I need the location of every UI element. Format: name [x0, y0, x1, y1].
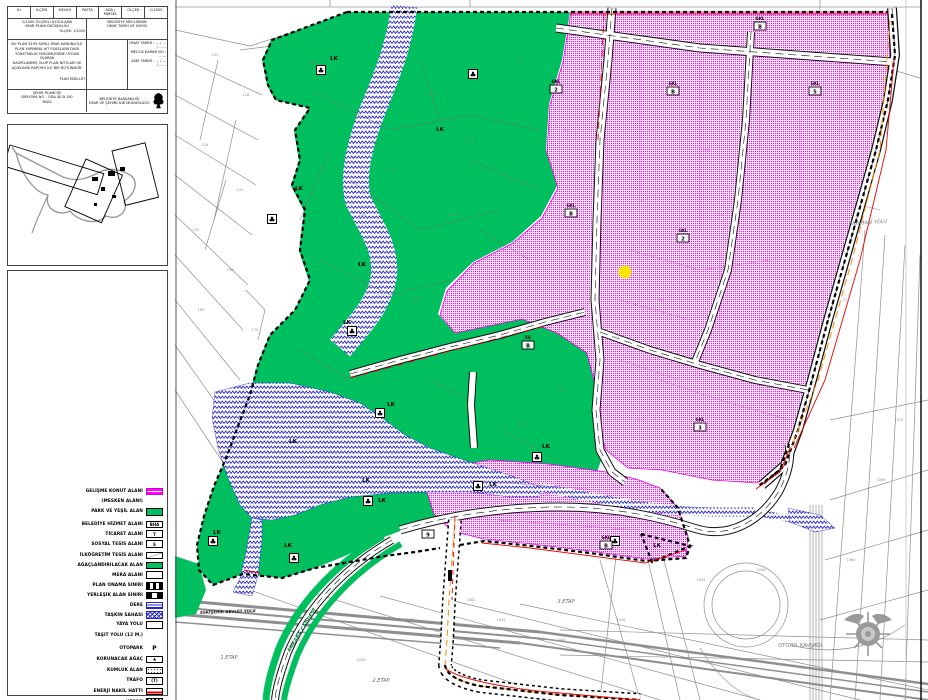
map-canvas[interactable]: LKLKLKLKLKLKLKLKLKLKLKLKLKLK♣♣♣♣♣♣♣♣♣♣♣G… [175, 0, 928, 700]
legend-swatch-green [146, 508, 163, 516]
legend-swatch-boxtext: T [146, 530, 163, 538]
parcel-number: 372 [843, 298, 850, 302]
legend-item: KORUNACAK AĞAÇ♣ [10, 655, 163, 664]
legend-item: (MESKEN ALANI) [10, 497, 163, 506]
poi-yellow-dot [619, 266, 632, 279]
legend-item: BELEDİYE HİZMET ALANIBHA [10, 520, 163, 529]
parcel-number: 342 [638, 198, 645, 202]
legend-item-label: TAŞIT YOLU (12 M.) [95, 633, 143, 638]
plan-title-cell: 1/1000 ÖLÇEKLİ UYGULAMA İMAR PLANI DEĞİŞ… [8, 19, 87, 39]
parcel-number: 247 [449, 213, 456, 217]
tree-icon: ♣ [469, 70, 478, 79]
legend-swatch-redline [146, 688, 163, 696]
parcel-number: 101 [212, 53, 219, 57]
tree-glyph: ♣ [349, 327, 356, 336]
parcel-number: 1034 [497, 618, 507, 622]
zone-label-lk: LK [330, 56, 339, 62]
zone-tag-code: 9 [426, 532, 430, 538]
zone-tag-code: 2 [681, 236, 685, 242]
tree-icon: ♣ [209, 537, 218, 546]
title-block-cell: 1/1000 [145, 7, 167, 18]
parcel-number: 214 [387, 168, 394, 172]
approval-dates: ONAY TARİHİ : ... / ... / ......MECLİS K… [128, 40, 167, 89]
tree-glyph: ♣ [612, 537, 619, 546]
map-text-label: 1.ETAP [221, 655, 238, 661]
legend-item-label: TRAFO [126, 678, 143, 683]
legend-item: PARK VE YEŞİL ALAN [10, 508, 163, 517]
legend-item-label: DERE [130, 603, 143, 608]
zone-tag-code: B [671, 89, 675, 95]
side-panel: İLİİLÇESİMEVKİİPAFTAADA / PARSELÖLÇEK1/1… [0, 0, 175, 700]
legend-item: GELİŞME KONUT ALANI [10, 487, 163, 496]
parcel-number: 240 [359, 213, 366, 217]
title-block-cell: ADA / PARSEL [99, 7, 122, 18]
tree-icon: ♣ [290, 554, 299, 563]
zone-tag-top: GKL [602, 535, 611, 540]
parcel-number: 366 [758, 318, 765, 322]
author-cell: ŞEHİR PLANCISIDİPLOMA NO - ODA SİCİL NOİ… [8, 90, 87, 112]
legend-item: AĞAÇLANDIRILACAK ALAN [10, 561, 163, 570]
legend-swatch-white [146, 571, 163, 579]
legend-item-label: ENERJİ NAKİL HATTI [94, 689, 144, 694]
inset-key-map [7, 124, 168, 266]
zone-tag-top: GKL [756, 16, 765, 21]
legend-item: MERA ALANI [10, 571, 163, 580]
tree-glyph: ♣ [377, 409, 384, 418]
legend-swatch-boxtext: BHA [146, 521, 163, 529]
parcel-number: 131 [237, 188, 244, 192]
zone-tag-code: B [758, 24, 762, 30]
zone-label-lk: LK [295, 186, 304, 192]
zone-tag-top: GKL [811, 81, 820, 86]
tree-glyph: ♣ [269, 215, 276, 224]
zone-label-lk: LK [542, 444, 551, 450]
municipality-cell: BELEDİYE BAŞKANLIĞI İMAR VE ŞEHİRCİLİK M… [87, 90, 167, 112]
tree-glyph: ♣ [210, 537, 217, 546]
legend-item: İLKÖĞRETİM TESİS ALANI [10, 551, 163, 560]
zone-tag-top: GKL [552, 79, 561, 84]
plan-note-line: AÇIKLAMA RAPORU İLE BİR BÜTÜNDÜR. [9, 66, 85, 70]
title-block-cell: PAFTA [77, 7, 100, 18]
zone-tag-top: GKL [679, 228, 688, 233]
tree-icon: ♣ [533, 453, 542, 462]
parcel-number: 259 [413, 298, 420, 302]
parcel-number: 1069 [877, 478, 886, 482]
parcel-number: 271 [299, 458, 306, 462]
legend-swatch-bluelines [146, 602, 163, 610]
municipality-logo [151, 92, 166, 110]
tree-icon: ♣ [317, 66, 326, 75]
zone-tag-code: 5 [813, 89, 817, 95]
approval-date-line: ASKI TARİHİ : ... / ... / ...... [129, 59, 166, 68]
legend-item-label: YERLEŞİK ALAN SINIRI [87, 593, 143, 598]
legend-item-label: YAYA YOLU [116, 622, 143, 627]
parcel-number: 1063 [847, 558, 856, 562]
legend-item-label: GELİŞME KONUT ALANI [86, 489, 143, 494]
parcel-number: 1040 [557, 638, 566, 642]
zone-label-lk: LK [284, 543, 293, 549]
parcel-number: 1052 [697, 578, 706, 582]
parcel-number: 1081 [467, 598, 476, 602]
tree-glyph: ♣ [365, 497, 372, 506]
title-block-cell: ÖLÇEK [122, 7, 145, 18]
zone-tag-code: 3 [698, 425, 702, 431]
parcel-number: 252 [499, 248, 506, 252]
map-text-label: 3.ETAP [558, 599, 575, 605]
legend-swatch-glyph: P [146, 644, 163, 652]
legend-item: YAYA YOLU [10, 621, 163, 630]
plan-note-line: PLAN YAPIMINA AİT ESASLARA DAİR [9, 47, 85, 51]
legend-item: DERE [10, 601, 163, 610]
municipality-line2: İMAR VE ŞEHİRCİLİK MÜDÜRLÜĞÜ [88, 101, 151, 105]
parcel-number: 378 [638, 418, 645, 422]
parcel-number: 1028 [357, 658, 366, 662]
parcel-number: 163 [198, 308, 205, 312]
zone-label-lk: LK [378, 498, 387, 504]
zone-tag-top: GKL [696, 417, 705, 422]
legend-item: ENERJİ NAKİL HATTI [10, 687, 163, 696]
parcel-number: 266 [327, 428, 334, 432]
legend-item-label: AĞAÇLANDIRILACAK ALAN [77, 563, 143, 568]
parcel-number: 221 [429, 93, 436, 97]
legend-item-label: KUMLUK ALAN [107, 668, 143, 673]
tree-icon: ♣ [376, 409, 385, 418]
parcel-number: 1087 [407, 618, 416, 622]
tree-icon: ♣ [268, 215, 277, 224]
tree-glyph: ♣ [534, 453, 541, 462]
legend-item-label: OTOPARK [119, 646, 143, 651]
parcel-number: 156 [227, 268, 234, 272]
parcel-number: 124 [202, 143, 209, 147]
parcel-number: 390 [498, 518, 505, 522]
approval-line2: ONAY TARİH VE SAYISI [88, 24, 166, 28]
zone-tag-top: GKL [669, 81, 678, 86]
zone-label-lk: LK [436, 127, 445, 133]
legend-item: KUMLUK ALAN [10, 666, 163, 675]
legend-item: YERLEŞİK ALAN SINIRI [10, 591, 163, 600]
legend-swatch-magenta [146, 488, 163, 496]
approval-date-line: MECLİS KARAR NO : ...... [129, 50, 166, 59]
tree-icon: ♣ [348, 327, 357, 336]
zone-tag-code: B [526, 343, 530, 349]
legend: GELİŞME KONUT ALANI(MESKEN ALANI)PARK VE… [10, 486, 163, 700]
inset-map-canvas [8, 125, 165, 263]
parcel-number: 384 [558, 388, 565, 392]
legend-swatch-diag [146, 552, 163, 560]
legend-item-label: SOSYAL TESİS ALANI [91, 542, 143, 547]
legend-item: SOSYAL TESİS ALANIS [10, 540, 163, 549]
legend-item: OTOPARKP [10, 644, 163, 653]
parcel-number: 360 [658, 298, 665, 302]
plan-sheet: İLİİLÇESİMEVKİİPAFTAADA / PARSELÖLÇEK1/1… [0, 0, 928, 700]
zone-tag-top: GKL [567, 203, 576, 208]
zone-tag-top: SU [525, 335, 531, 340]
parcel-number: 354 [798, 228, 805, 232]
legend-swatch-bwdash2 [146, 592, 163, 600]
title-block-row1: İLİİLÇESİMEVKİİPAFTAADA / PARSELÖLÇEK1/1… [8, 7, 167, 19]
zone-label-lk: LK [362, 478, 371, 484]
legend-item: TİCARET ALANIT [10, 530, 163, 539]
legend-item: TAŞIT YOLU (12 M.) [10, 631, 163, 640]
parcel-number: 233 [517, 59, 524, 63]
parcel-number: 348 [718, 213, 725, 217]
plan-note-line: BU PLAN 3194 SAYILI İMAR KANUNU İLE [9, 42, 85, 46]
legend-item-label: PLAN ONAMA SINIRI [93, 583, 143, 588]
zone-label-lk: LK [387, 402, 396, 408]
plan-author-note: PLAN MÜELLİFİ [9, 77, 85, 81]
zone-label-lk: LK [289, 439, 298, 445]
parcel-number: 170 [252, 328, 259, 332]
map-text-label: 2.ETAP [373, 678, 390, 684]
legend-item-label: TAŞKIN SAHASI [105, 613, 143, 618]
author-line: İMZA [9, 100, 85, 104]
title-block-cell: İLÇESİ [31, 7, 54, 18]
parcel-number: 228 [467, 138, 474, 142]
legend-item-label: KORUNACAK AĞAÇ [96, 657, 143, 662]
legend-swatch-boxtext: (T) [146, 677, 163, 685]
parcel-number: 1046 [617, 618, 626, 622]
signature-box-1 [87, 40, 128, 89]
legend-item-label: TİCARET ALANI [105, 532, 143, 537]
title-block: İLİİLÇESİMEVKİİPAFTAADA / PARSELÖLÇEK1/1… [7, 6, 168, 114]
parcel-number: 310 [563, 128, 570, 132]
tree-glyph: ♣ [318, 66, 325, 75]
legend-item: PLAN ONAMA SINIRI [10, 581, 163, 590]
legend-item: TAŞKIN SAHASI [10, 611, 163, 620]
tree-glyph: ♣ [470, 70, 477, 79]
parcel-number: 324 [703, 148, 710, 152]
legend-item: TRAFO(T) [10, 677, 163, 686]
legend-swatch-tree: ♣ [146, 656, 163, 664]
tree-glyph: ♣ [475, 482, 482, 491]
zone-label-lk: LK [213, 530, 222, 536]
zone-tag-code: 2 [554, 87, 558, 93]
legend-swatch-white [146, 621, 163, 629]
plan-notes: BU PLAN 3194 SAYILI İMAR KANUNU İLEPLAN … [8, 40, 87, 89]
tree-icon: ♣ [364, 497, 373, 506]
plan-scale-note: ÖLÇEK: 1/1000 [9, 29, 85, 33]
legend-swatch-dotted [146, 667, 163, 675]
legend-swatch-bluehatch [146, 611, 163, 619]
legend-box: GELİŞME KONUT ALANI(MESKEN ALANI)PARK VE… [7, 270, 168, 696]
zone-tag-code: B [604, 543, 608, 549]
legend-item-label: (MESKEN ALANI) [101, 499, 143, 504]
map-text-label: OTOYOL KAVŞAĞI [778, 642, 821, 649]
legend-item-label: BELEDİYE HİZMET ALANI [82, 522, 143, 527]
parcel-number: 278 [518, 423, 525, 427]
parcel-number: 1058 [757, 568, 766, 572]
zone-label-lk: LK [358, 262, 367, 268]
parcel-number: 205 [309, 61, 316, 65]
zone-label-lk: LK [343, 320, 352, 326]
parcel-number: 336 [838, 128, 845, 132]
legend-swatch-bwdash [146, 582, 163, 590]
tree-icon: ♣ [474, 482, 483, 491]
parcel-number: 330 [768, 118, 775, 122]
zone-label-lk: LK [653, 543, 662, 549]
zone-label-lk: LK [489, 482, 498, 488]
title-block-cell: İLİ [8, 7, 31, 18]
legend-item-label: İLKÖĞRETİM TESİS ALANI [80, 553, 143, 558]
legend-item-label: MERA ALANI [112, 573, 143, 578]
parcel-number: 118 [243, 93, 250, 97]
approval-date-line: ONAY TARİHİ : ... / ... / ...... [129, 41, 166, 50]
legend-swatch-boxtext: S [146, 540, 163, 548]
tree-glyph: ♣ [291, 554, 298, 563]
legend-swatch-green [146, 562, 163, 570]
parcel-number: 142 [193, 228, 200, 232]
zone-tag-code: B [569, 211, 573, 217]
parcel-number: 1075 [895, 418, 904, 422]
legend-item-label: PARK VE YEŞİL ALAN [91, 509, 143, 514]
title-block-cell: MEVKİİ [54, 7, 77, 18]
parcel-number: 318 [648, 128, 655, 132]
plan-note-line: YÖNETMELİK HÜKÜMLERİNE UYGUN OLARAK [9, 52, 85, 61]
